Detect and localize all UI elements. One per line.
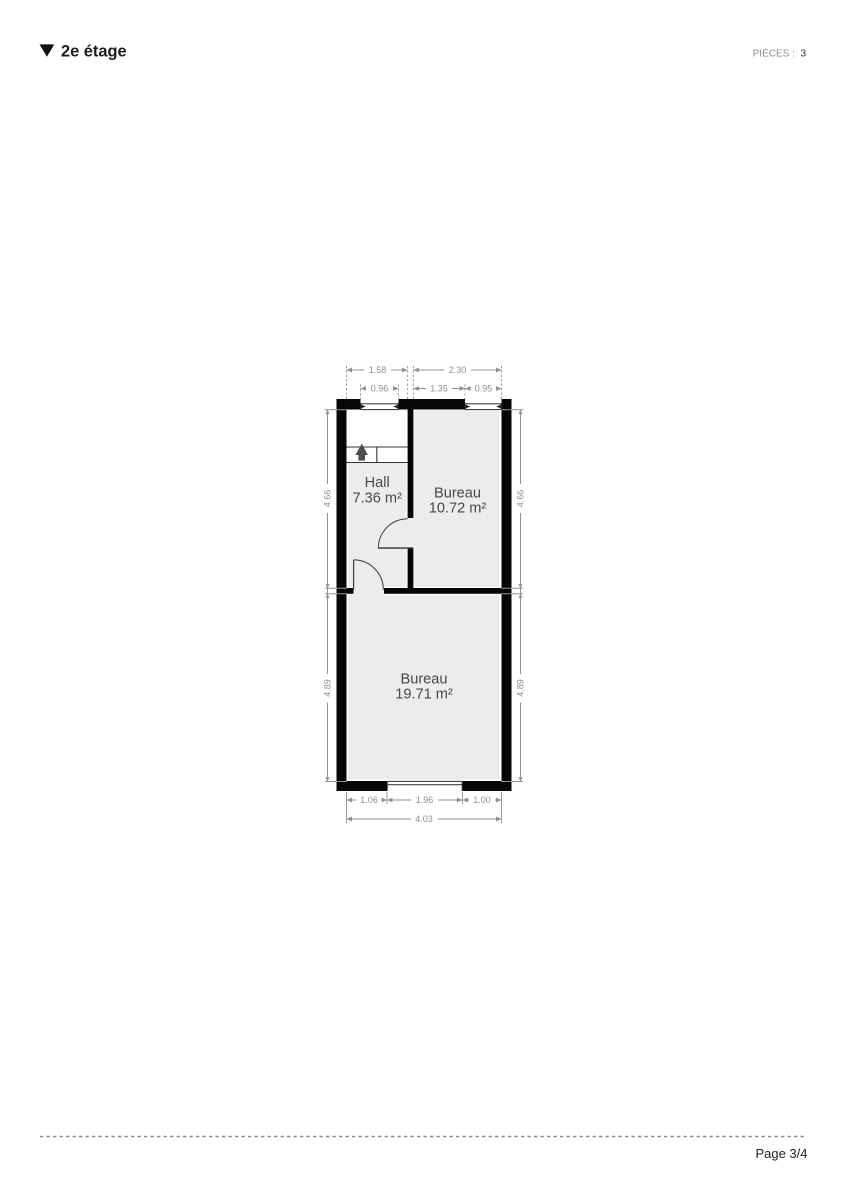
svg-text:Bureau: Bureau [400, 672, 447, 688]
svg-text:4.66: 4.66 [516, 490, 526, 508]
svg-text:0.95: 0.95 [475, 384, 493, 394]
svg-text:10.72 m²: 10.72 m² [429, 501, 487, 517]
svg-text:2e étage: 2e étage [61, 43, 127, 61]
svg-text:1.58: 1.58 [369, 365, 387, 375]
svg-text:4.66: 4.66 [323, 490, 333, 508]
svg-text:1.35: 1.35 [430, 384, 448, 394]
svg-text:2.30: 2.30 [449, 365, 467, 375]
svg-text:4.89: 4.89 [323, 679, 333, 697]
svg-text:1.96: 1.96 [416, 795, 434, 805]
svg-text:19.71 m²: 19.71 m² [395, 687, 453, 703]
svg-text:7.36 m²: 7.36 m² [352, 491, 402, 507]
svg-text:Hall: Hall [365, 475, 390, 491]
svg-text:1.06: 1.06 [360, 795, 378, 805]
svg-text:PIÈCES : 3: PIÈCES : 3 [753, 46, 807, 59]
svg-text:4.03: 4.03 [415, 814, 433, 824]
svg-text:0.96: 0.96 [371, 384, 389, 394]
svg-text:4.89: 4.89 [516, 679, 526, 697]
svg-text:1.00: 1.00 [473, 795, 491, 805]
svg-text:Bureau: Bureau [434, 486, 481, 502]
svg-text:Page 3/4: Page 3/4 [755, 1146, 807, 1161]
